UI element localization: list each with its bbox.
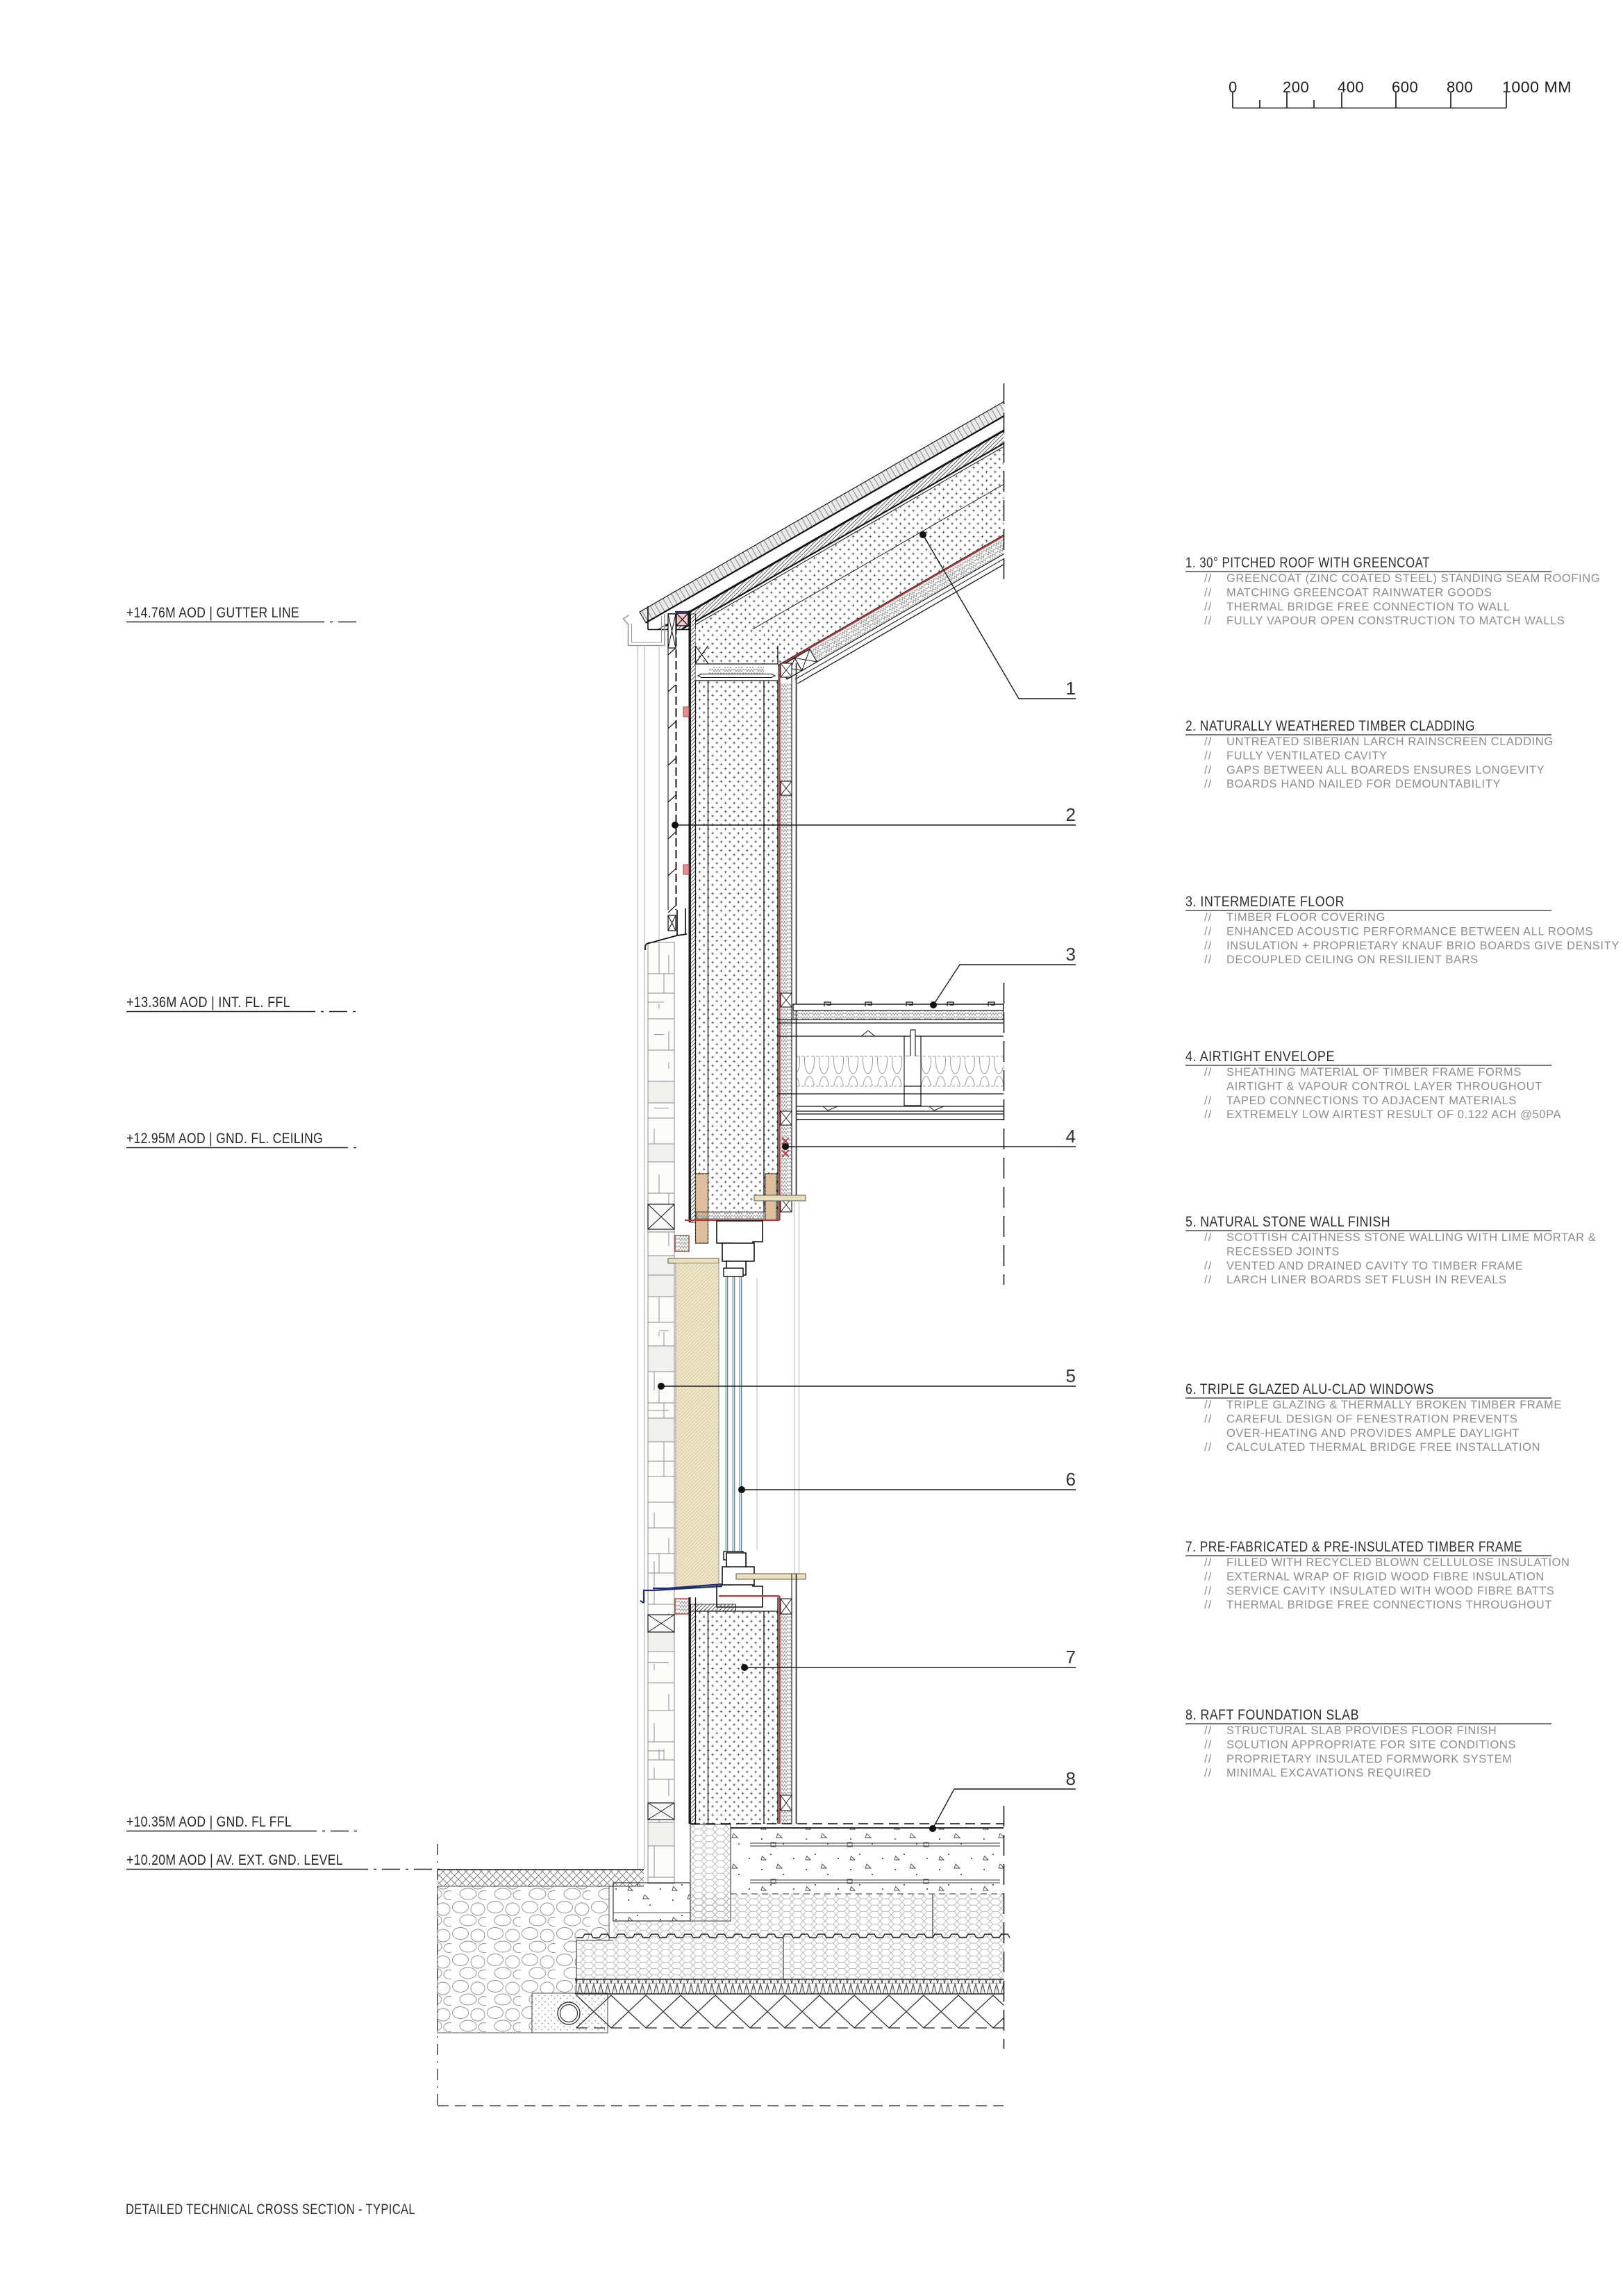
svg-text:FILLED WITH RECYCLED BLOWN CEL: FILLED WITH RECYCLED BLOWN CELLULOSE INS… [1226,1556,1570,1569]
svg-text:+14.76M AOD | GUTTER LINE: +14.76M AOD | GUTTER LINE [126,604,299,621]
svg-text:8. RAFT FOUNDATION SLAB: 8. RAFT FOUNDATION SLAB [1185,1706,1359,1723]
svg-text:1000 MM: 1000 MM [1502,78,1572,96]
svg-text:7: 7 [1066,1647,1076,1667]
svg-text://: // [1204,572,1213,585]
svg-text:SCOTTISH CAITHNESS STONE WALLI: SCOTTISH CAITHNESS STONE WALLING WITH LI… [1226,1231,1596,1244]
svg-text:RECESSED JOINTS: RECESSED JOINTS [1226,1245,1340,1258]
svg-text://: // [1204,954,1213,966]
svg-text://: // [1204,1066,1213,1079]
svg-text://: // [1204,778,1213,790]
svg-text://: // [1204,1274,1213,1286]
svg-text:TRIPLE GLAZING & THERMALLY BRO: TRIPLE GLAZING & THERMALLY BROKEN TIMBER… [1226,1399,1562,1411]
svg-text:CALCULATED THERMAL BRIDGE FREE: CALCULATED THERMAL BRIDGE FREE INSTALLAT… [1226,1441,1540,1454]
svg-text:7. PRE-FABRICATED & PRE-INSULA: 7. PRE-FABRICATED & PRE-INSULATED TIMBER… [1185,1538,1522,1555]
svg-text:UNTREATED SIBERIAN LARCH RAINS: UNTREATED SIBERIAN LARCH RAINSCREEN CLAD… [1226,735,1554,748]
svg-text:1: 1 [1066,678,1076,699]
svg-text:THERMAL BRIDGE FREE CONNECTION: THERMAL BRIDGE FREE CONNECTIONS THROUGHO… [1226,1599,1552,1611]
svg-text://: // [1204,1738,1213,1751]
svg-text:DETAILED TECHNICAL CROSS SECTI: DETAILED TECHNICAL CROSS SECTION - TYPIC… [126,2201,415,2218]
svg-text:800: 800 [1447,78,1473,96]
svg-text:EXTREMELY LOW AIRTEST RESULT O: EXTREMELY LOW AIRTEST RESULT OF 0.122 AC… [1226,1108,1561,1121]
svg-text://: // [1204,586,1213,599]
svg-text:FULLY VENTILATED CAVITY: FULLY VENTILATED CAVITY [1226,749,1388,762]
svg-text:LARCH LINER BOARDS SET FLUSH I: LARCH LINER BOARDS SET FLUSH IN REVEALS [1226,1274,1507,1286]
svg-text://: // [1204,1413,1213,1425]
svg-text:TAPED CONNECTIONS TO ADJACENT: TAPED CONNECTIONS TO ADJACENT MATERIALS [1226,1095,1517,1107]
svg-text:600: 600 [1392,78,1418,96]
svg-text:GAPS BETWEEN ALL BOAREDS ENSUR: GAPS BETWEEN ALL BOAREDS ENSURES LONGEVI… [1226,764,1545,776]
svg-text://: // [1204,1441,1213,1454]
svg-text:CAREFUL DESIGN OF FENESTRATION: CAREFUL DESIGN OF FENESTRATION PREVENTS [1226,1413,1517,1425]
svg-text:2: 2 [1066,804,1076,825]
svg-text:STRUCTURAL SLAB PROVIDES FLOOR: STRUCTURAL SLAB PROVIDES FLOOR FINISH [1226,1724,1497,1737]
svg-text:PROPRIETARY INSULATED FORMWORK: PROPRIETARY INSULATED FORMWORK SYSTEM [1226,1753,1513,1765]
svg-text:TIMBER FLOOR COVERING: TIMBER FLOOR COVERING [1226,911,1385,924]
svg-text://: // [1204,1585,1213,1597]
svg-text://: // [1204,1570,1213,1583]
svg-text://: // [1204,1231,1213,1244]
svg-text:3: 3 [1066,944,1076,965]
svg-text:DECOUPLED CEILING ON RESILIENT: DECOUPLED CEILING ON RESILIENT BARS [1226,954,1479,966]
svg-text:2. NATURALLY WEATHERED TIMBER: 2. NATURALLY WEATHERED TIMBER CLADDING [1185,717,1475,734]
svg-text:6: 6 [1066,1469,1076,1490]
svg-text://: // [1204,1260,1213,1272]
svg-text:FULLY VAPOUR OPEN CONSTRUCTION: FULLY VAPOUR OPEN CONSTRUCTION TO MATCH … [1226,615,1565,627]
svg-text://: // [1204,940,1213,952]
svg-text:200: 200 [1283,78,1309,96]
svg-text:6. TRIPLE GLAZED ALU-CLAD WIND: 6. TRIPLE GLAZED ALU-CLAD WINDOWS [1185,1381,1434,1397]
svg-text:AIRTIGHT & VAPOUR CONTROL LAYE: AIRTIGHT & VAPOUR CONTROL LAYER THROUGHO… [1226,1080,1542,1092]
svg-text://: // [1204,1556,1213,1569]
svg-text:3. INTERMEDIATE FLOOR: 3. INTERMEDIATE FLOOR [1185,893,1345,910]
svg-text://: // [1204,1399,1213,1411]
svg-text:OVER-HEATING AND PROVIDES AMPL: OVER-HEATING AND PROVIDES AMPLE DAYLIGHT [1226,1427,1520,1440]
svg-text:SHEATHING MATERIAL OF TIMBER F: SHEATHING MATERIAL OF TIMBER FRAME FORMS [1226,1066,1522,1079]
svg-text://: // [1204,1599,1213,1611]
svg-text:ENHANCED ACOUSTIC PERFORMANCE: ENHANCED ACOUSTIC PERFORMANCE BETWEEN AL… [1226,925,1593,938]
svg-text:8: 8 [1066,1768,1076,1789]
svg-text:4: 4 [1066,1126,1076,1147]
svg-text:1. 30° PITCHED ROOF WITH GREEN: 1. 30° PITCHED ROOF WITH GREENCOAT [1185,554,1430,571]
svg-text:SOLUTION APPROPRIATE FOR SITE: SOLUTION APPROPRIATE FOR SITE CONDITIONS [1226,1738,1516,1751]
svg-text://: // [1204,911,1213,924]
svg-text:0: 0 [1229,78,1238,96]
svg-text:INSULATION + PROPRIETARY KNAUF: INSULATION + PROPRIETARY KNAUF BRIO BOAR… [1226,940,1620,952]
svg-text:+10.20M AOD | AV. EXT. GND.: +10.20M AOD | AV. EXT. GND. LEVEL [126,1852,343,1868]
svg-text:5: 5 [1066,1365,1076,1386]
svg-text:MINIMAL EXCAVATIONS REQUIRED: MINIMAL EXCAVATIONS REQUIRED [1226,1767,1431,1779]
svg-text://: // [1204,1753,1213,1765]
svg-text:4. AIRTIGHT ENVELOPE: 4. AIRTIGHT ENVELOPE [1185,1048,1335,1065]
svg-text://: // [1204,1767,1213,1779]
svg-text://: // [1204,1108,1213,1121]
svg-text:MATCHING GREENCOAT RAINWATER G: MATCHING GREENCOAT RAINWATER GOODS [1226,586,1492,599]
svg-text:SERVICE CAVITY INSULATED WITH: SERVICE CAVITY INSULATED WITH WOOD FIBRE… [1226,1585,1555,1597]
svg-text:5. NATURAL STONE WALL FINISH: 5. NATURAL STONE WALL FINISH [1185,1213,1390,1230]
svg-text:VENTED AND DRAINED CAVITY TO T: VENTED AND DRAINED CAVITY TO TIMBER FRAM… [1226,1260,1523,1272]
svg-text://: // [1204,764,1213,776]
svg-text:400: 400 [1338,78,1364,96]
svg-text:BOARDS HAND NAILED FOR DEMOUNT: BOARDS HAND NAILED FOR DEMOUNTABILITY [1226,778,1501,790]
svg-text:+10.35M AOD | GND. FL FFL: +10.35M AOD | GND. FL FFL [126,1813,292,1830]
svg-text://: // [1204,925,1213,938]
svg-text://: // [1204,601,1213,613]
svg-text:THERMAL BRIDGE FREE CONNECTION: THERMAL BRIDGE FREE CONNECTION TO WALL [1226,601,1510,613]
svg-text:EXTERNAL WRAP OF RIGID WOOD FI: EXTERNAL WRAP OF RIGID WOOD FIBRE INSULA… [1226,1570,1545,1583]
svg-text://: // [1204,1724,1213,1737]
svg-text:+12.95M AOD | GND. FL. CEILI: +12.95M AOD | GND. FL. CEILING [126,1130,323,1147]
svg-text://: // [1204,615,1213,627]
svg-text:+13.36M AOD | INT. FL. FFL: +13.36M AOD | INT. FL. FFL [126,994,290,1010]
svg-text://: // [1204,735,1213,748]
svg-text://: // [1204,749,1213,762]
svg-text:GREENCOAT (ZINC COATED STEEL): GREENCOAT (ZINC COATED STEEL) STANDING S… [1226,572,1600,585]
svg-text://: // [1204,1095,1213,1107]
